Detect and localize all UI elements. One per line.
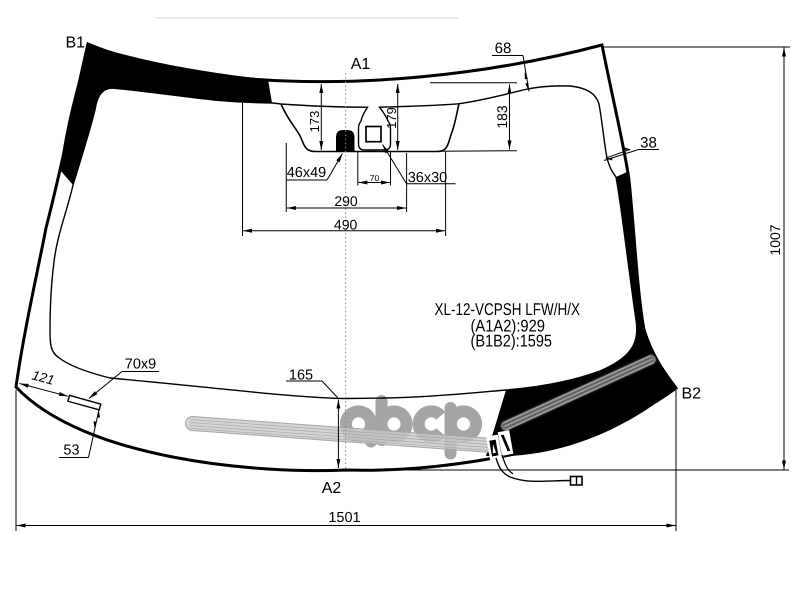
svg-text:68: 68 (495, 40, 512, 57)
svg-text:290: 290 (334, 193, 358, 209)
svg-text:490: 490 (334, 216, 358, 232)
svg-text:A1: A1 (351, 56, 371, 73)
svg-text:70: 70 (370, 173, 380, 183)
svg-text:183: 183 (494, 105, 510, 129)
svg-text:36x30: 36x30 (408, 170, 448, 186)
svg-text:165: 165 (289, 368, 313, 384)
svg-text:1501: 1501 (328, 510, 360, 526)
svg-text:A2: A2 (322, 480, 342, 497)
svg-text:1007: 1007 (767, 224, 783, 255)
svg-text:70x9: 70x9 (125, 357, 156, 373)
svg-text:179: 179 (384, 107, 399, 129)
svg-text:(B1B2):1595: (B1B2):1595 (471, 331, 553, 350)
svg-text:B2: B2 (682, 386, 702, 403)
svg-text:B1: B1 (66, 35, 86, 52)
svg-text:38: 38 (640, 134, 657, 151)
svg-text:53: 53 (63, 443, 79, 459)
svg-text:46x49: 46x49 (287, 165, 327, 181)
svg-text:173: 173 (307, 111, 322, 133)
